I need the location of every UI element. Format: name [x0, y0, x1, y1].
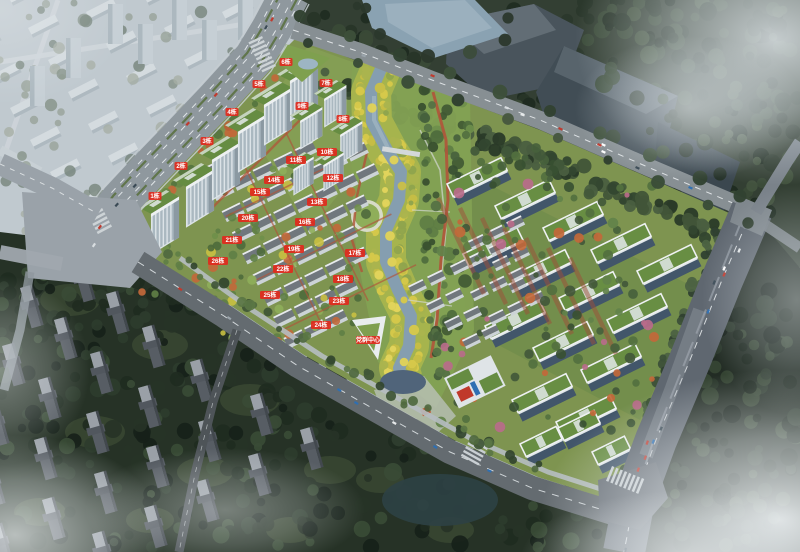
- svg-text:21栋: 21栋: [226, 236, 239, 244]
- svg-text:16栋: 16栋: [299, 218, 312, 226]
- svg-text:4栋: 4栋: [227, 108, 236, 116]
- svg-text:23栋: 23栋: [333, 297, 346, 305]
- svg-text:13栋: 13栋: [311, 198, 324, 206]
- svg-text:14栋: 14栋: [268, 176, 281, 184]
- svg-text:3栋: 3栋: [202, 137, 211, 145]
- svg-text:10栋: 10栋: [321, 148, 334, 156]
- svg-text:9栋: 9栋: [297, 102, 306, 110]
- svg-text:2栋: 2栋: [176, 162, 185, 170]
- svg-text:25栋: 25栋: [264, 291, 277, 299]
- svg-text:1栋: 1栋: [150, 192, 159, 200]
- svg-text:8栋: 8栋: [338, 115, 347, 123]
- svg-text:11栋: 11栋: [290, 156, 302, 164]
- svg-text:7栋: 7栋: [321, 79, 330, 87]
- svg-text:5栋: 5栋: [254, 80, 263, 88]
- svg-text:22栋: 22栋: [277, 265, 290, 273]
- svg-text:19栋: 19栋: [288, 245, 301, 253]
- svg-text:党群中心: 党群中心: [356, 336, 380, 344]
- svg-text:18栋: 18栋: [337, 275, 350, 283]
- svg-text:17栋: 17栋: [349, 249, 362, 257]
- svg-text:12栋: 12栋: [327, 174, 340, 182]
- svg-text:24栋: 24栋: [315, 321, 328, 329]
- svg-text:20栋: 20栋: [242, 214, 255, 222]
- svg-text:6栋: 6栋: [281, 58, 290, 66]
- svg-text:26栋: 26栋: [212, 257, 225, 265]
- svg-text:15栋: 15栋: [254, 188, 267, 196]
